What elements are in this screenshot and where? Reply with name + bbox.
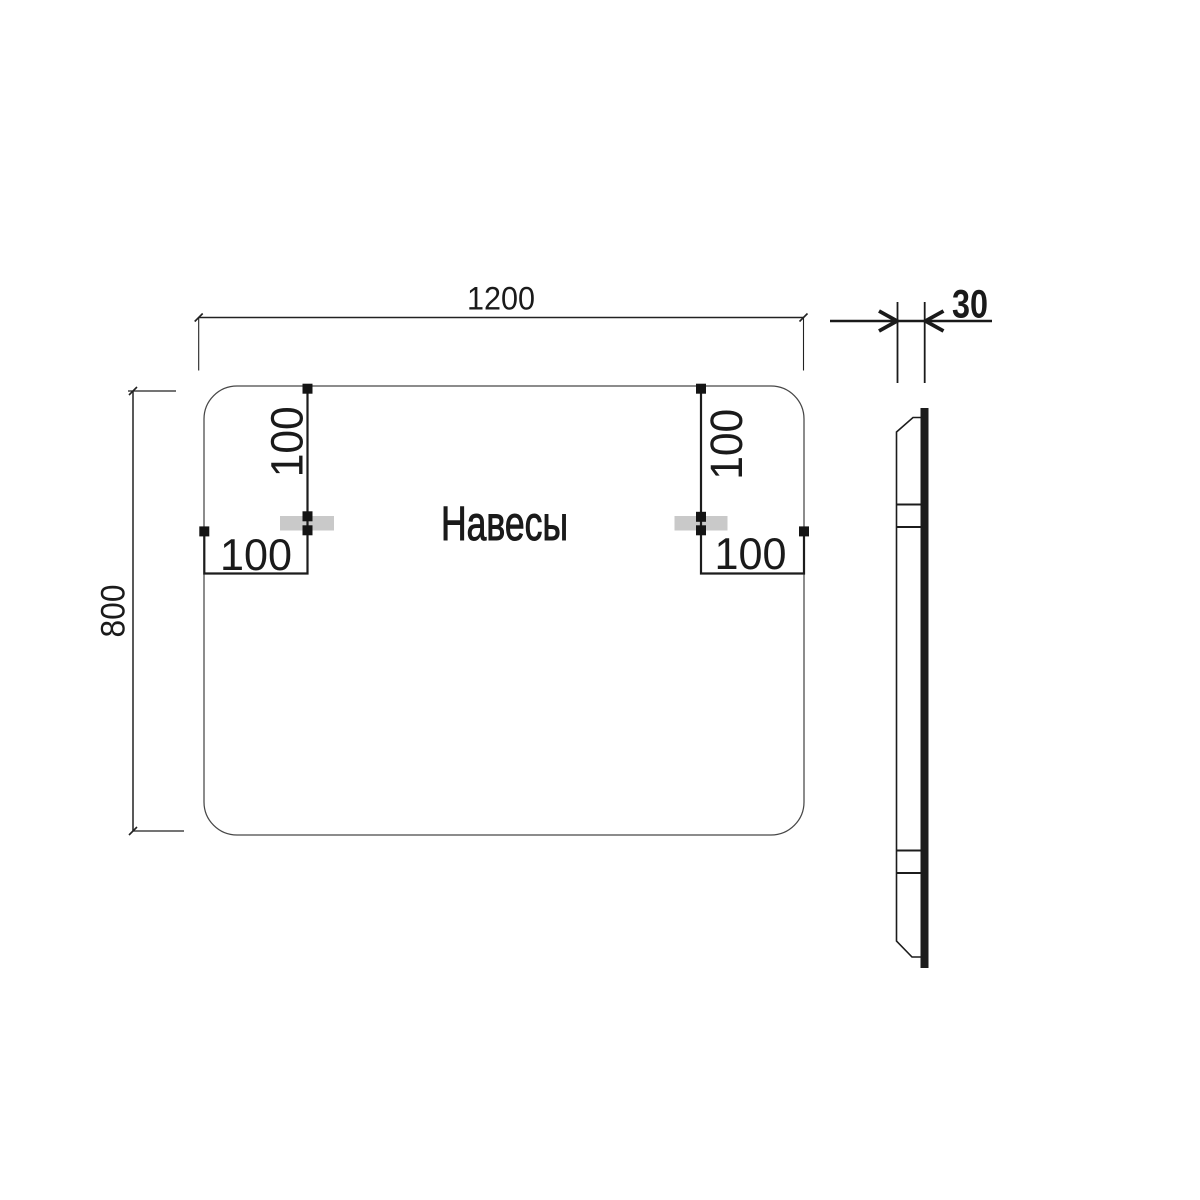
svg-text:100: 100 xyxy=(715,530,787,579)
svg-text:100: 100 xyxy=(262,406,313,477)
svg-text:Навесы: Навесы xyxy=(441,498,568,551)
svg-text:1200: 1200 xyxy=(467,281,535,317)
svg-text:30: 30 xyxy=(952,283,988,327)
svg-text:800: 800 xyxy=(95,585,133,638)
svg-text:100: 100 xyxy=(701,409,752,480)
svg-text:100: 100 xyxy=(220,531,292,580)
